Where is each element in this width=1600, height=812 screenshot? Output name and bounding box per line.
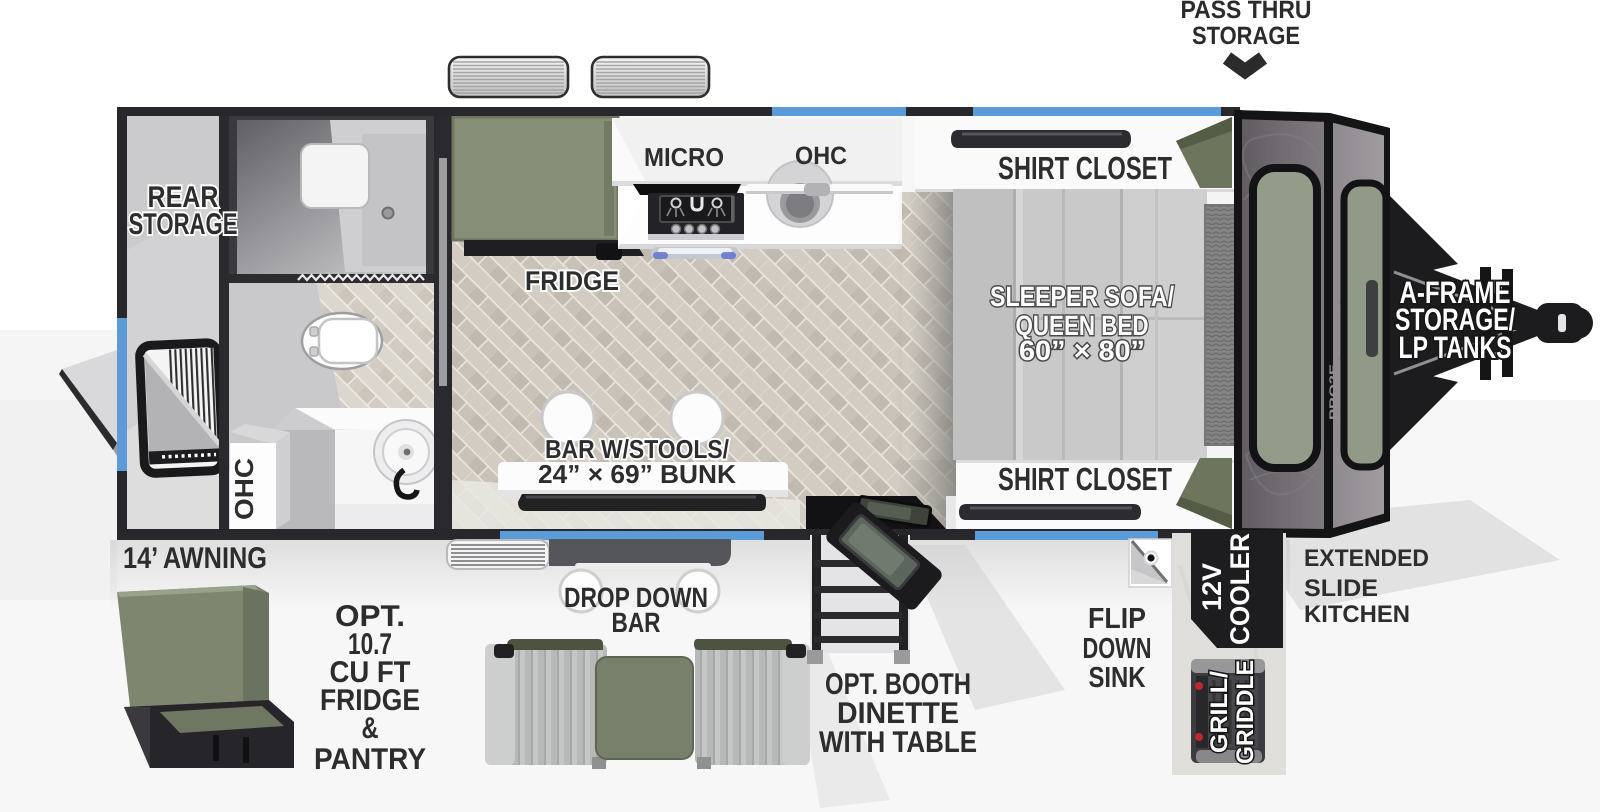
svg-text:60” × 80”: 60” × 80” (1019, 335, 1145, 366)
svg-text:WITH TABLE: WITH TABLE (819, 726, 977, 759)
svg-text:PASS THRU: PASS THRU (1181, 0, 1312, 24)
svg-text:BAR: BAR (612, 607, 661, 638)
svg-text:DOWN: DOWN (1083, 633, 1152, 665)
svg-text:FRIDGE: FRIDGE (525, 266, 619, 296)
svg-text:24” × 69” BUNK: 24” × 69” BUNK (538, 459, 736, 489)
svg-text:EXTENDED: EXTENDED (1304, 545, 1429, 572)
svg-text:OHC: OHC (795, 142, 847, 170)
svg-text:LP TANKS: LP TANKS (1399, 330, 1512, 365)
svg-text:KITCHEN: KITCHEN (1304, 601, 1410, 628)
svg-text:14’ AWNING: 14’ AWNING (123, 542, 267, 575)
svg-text:MICRO: MICRO (644, 142, 724, 172)
svg-text:COOLER: COOLER (1225, 533, 1255, 645)
svg-text:SLEEPER SOFA/: SLEEPER SOFA/ (990, 281, 1174, 312)
svg-text:STORAGE: STORAGE (129, 208, 238, 241)
svg-text:SLIDE: SLIDE (1304, 575, 1378, 602)
svg-text:SINK: SINK (1089, 662, 1146, 694)
svg-text:PANTRY: PANTRY (314, 743, 426, 776)
svg-text:GRIDDLE: GRIDDLE (1232, 660, 1259, 764)
svg-text:GRILL/: GRILL/ (1206, 671, 1233, 753)
svg-text:12V: 12V (1197, 563, 1227, 611)
svg-text:&: & (362, 712, 379, 745)
svg-text:STORAGE: STORAGE (1192, 22, 1300, 50)
svg-text:FLIP: FLIP (1088, 603, 1146, 635)
svg-text:SHIRT CLOSET: SHIRT CLOSET (998, 150, 1172, 186)
svg-text:SHIRT CLOSET: SHIRT CLOSET (998, 461, 1172, 497)
svg-text:OHC: OHC (229, 458, 259, 520)
svg-text:PRO2E: PRO2E (1328, 364, 1340, 420)
